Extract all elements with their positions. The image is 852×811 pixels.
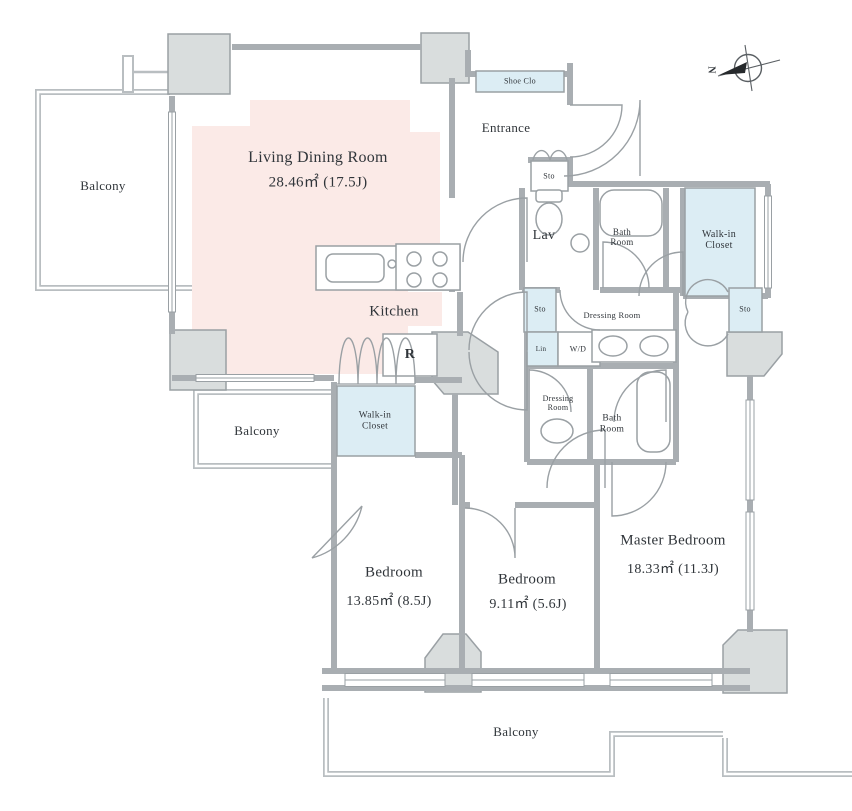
- entrance-door: [570, 105, 622, 157]
- dressing-room-lower-label: Dressing Room: [536, 395, 580, 413]
- hall-door-right: [564, 100, 640, 176]
- lavatory-label: Lav: [533, 228, 556, 244]
- living-room-floor: [192, 100, 442, 374]
- living-dining-area: 28.46㎡ (17.5J): [269, 171, 368, 192]
- floor-plan: Living Dining Room 28.46㎡ (17.5J) Kitche…: [0, 0, 852, 811]
- storage-hall-label: Sto: [534, 305, 546, 314]
- dressing-room-upper-label: Dressing Room: [583, 310, 640, 320]
- burner: [433, 252, 447, 266]
- lavatory-basin: [571, 234, 589, 252]
- shoe-closet-label: Shoe Clo: [504, 77, 536, 86]
- storage-entrance-label: Sto: [543, 172, 555, 181]
- bedroom2-label: Bedroom: [498, 572, 556, 589]
- walkin-closet-master-label: Walk-in Closet: [694, 229, 744, 251]
- balcony-middle-label: Balcony: [234, 423, 279, 439]
- bedroom1-area: 13.85㎡ (8.5J): [346, 590, 431, 610]
- bedroom2-door: [465, 508, 515, 558]
- washer-dryer-label: W/D: [570, 345, 586, 354]
- balcony-left-label: Balcony: [80, 178, 125, 194]
- compass-icon: [718, 45, 780, 91]
- compass-north-label: N: [706, 66, 717, 74]
- burner: [407, 273, 421, 287]
- kitchen-faucet: [388, 260, 396, 268]
- bathtub-lower: [637, 372, 670, 452]
- storage-master-label: Sto: [739, 305, 751, 314]
- stove: [396, 244, 460, 290]
- bathroom-lower-label: Bath Room: [592, 413, 632, 434]
- dressing-basin: [541, 419, 573, 443]
- master-bedroom-label: Master Bedroom: [620, 533, 725, 550]
- burner: [407, 252, 421, 266]
- balcony-bottom-label: Balcony: [493, 724, 538, 740]
- vanity-basin: [640, 336, 668, 356]
- living-dining-label: Living Dining Room: [248, 149, 388, 167]
- refrigerator-label: R: [405, 347, 415, 363]
- vanity-basin: [599, 336, 627, 356]
- bedroom1-label: Bedroom: [365, 565, 423, 582]
- entrance-label: Entrance: [482, 120, 531, 136]
- kitchen-label: Kitchen: [369, 304, 419, 321]
- floor-plan-drawing: [0, 0, 852, 811]
- walkin-closet-bedroom-label: Walk-in Closet: [351, 410, 399, 431]
- toilet-tank: [536, 190, 562, 202]
- living-door: [463, 198, 527, 262]
- burner: [433, 273, 447, 287]
- bedroom2-area: 9.11㎡ (5.6J): [489, 593, 566, 613]
- master-bedroom-area: 18.33㎡ (11.3J): [627, 558, 719, 578]
- bathroom-upper-label: Bath Room: [603, 227, 641, 247]
- linen-label: Lin: [536, 345, 547, 353]
- kitchen-sink: [326, 254, 384, 282]
- master-door: [612, 462, 666, 516]
